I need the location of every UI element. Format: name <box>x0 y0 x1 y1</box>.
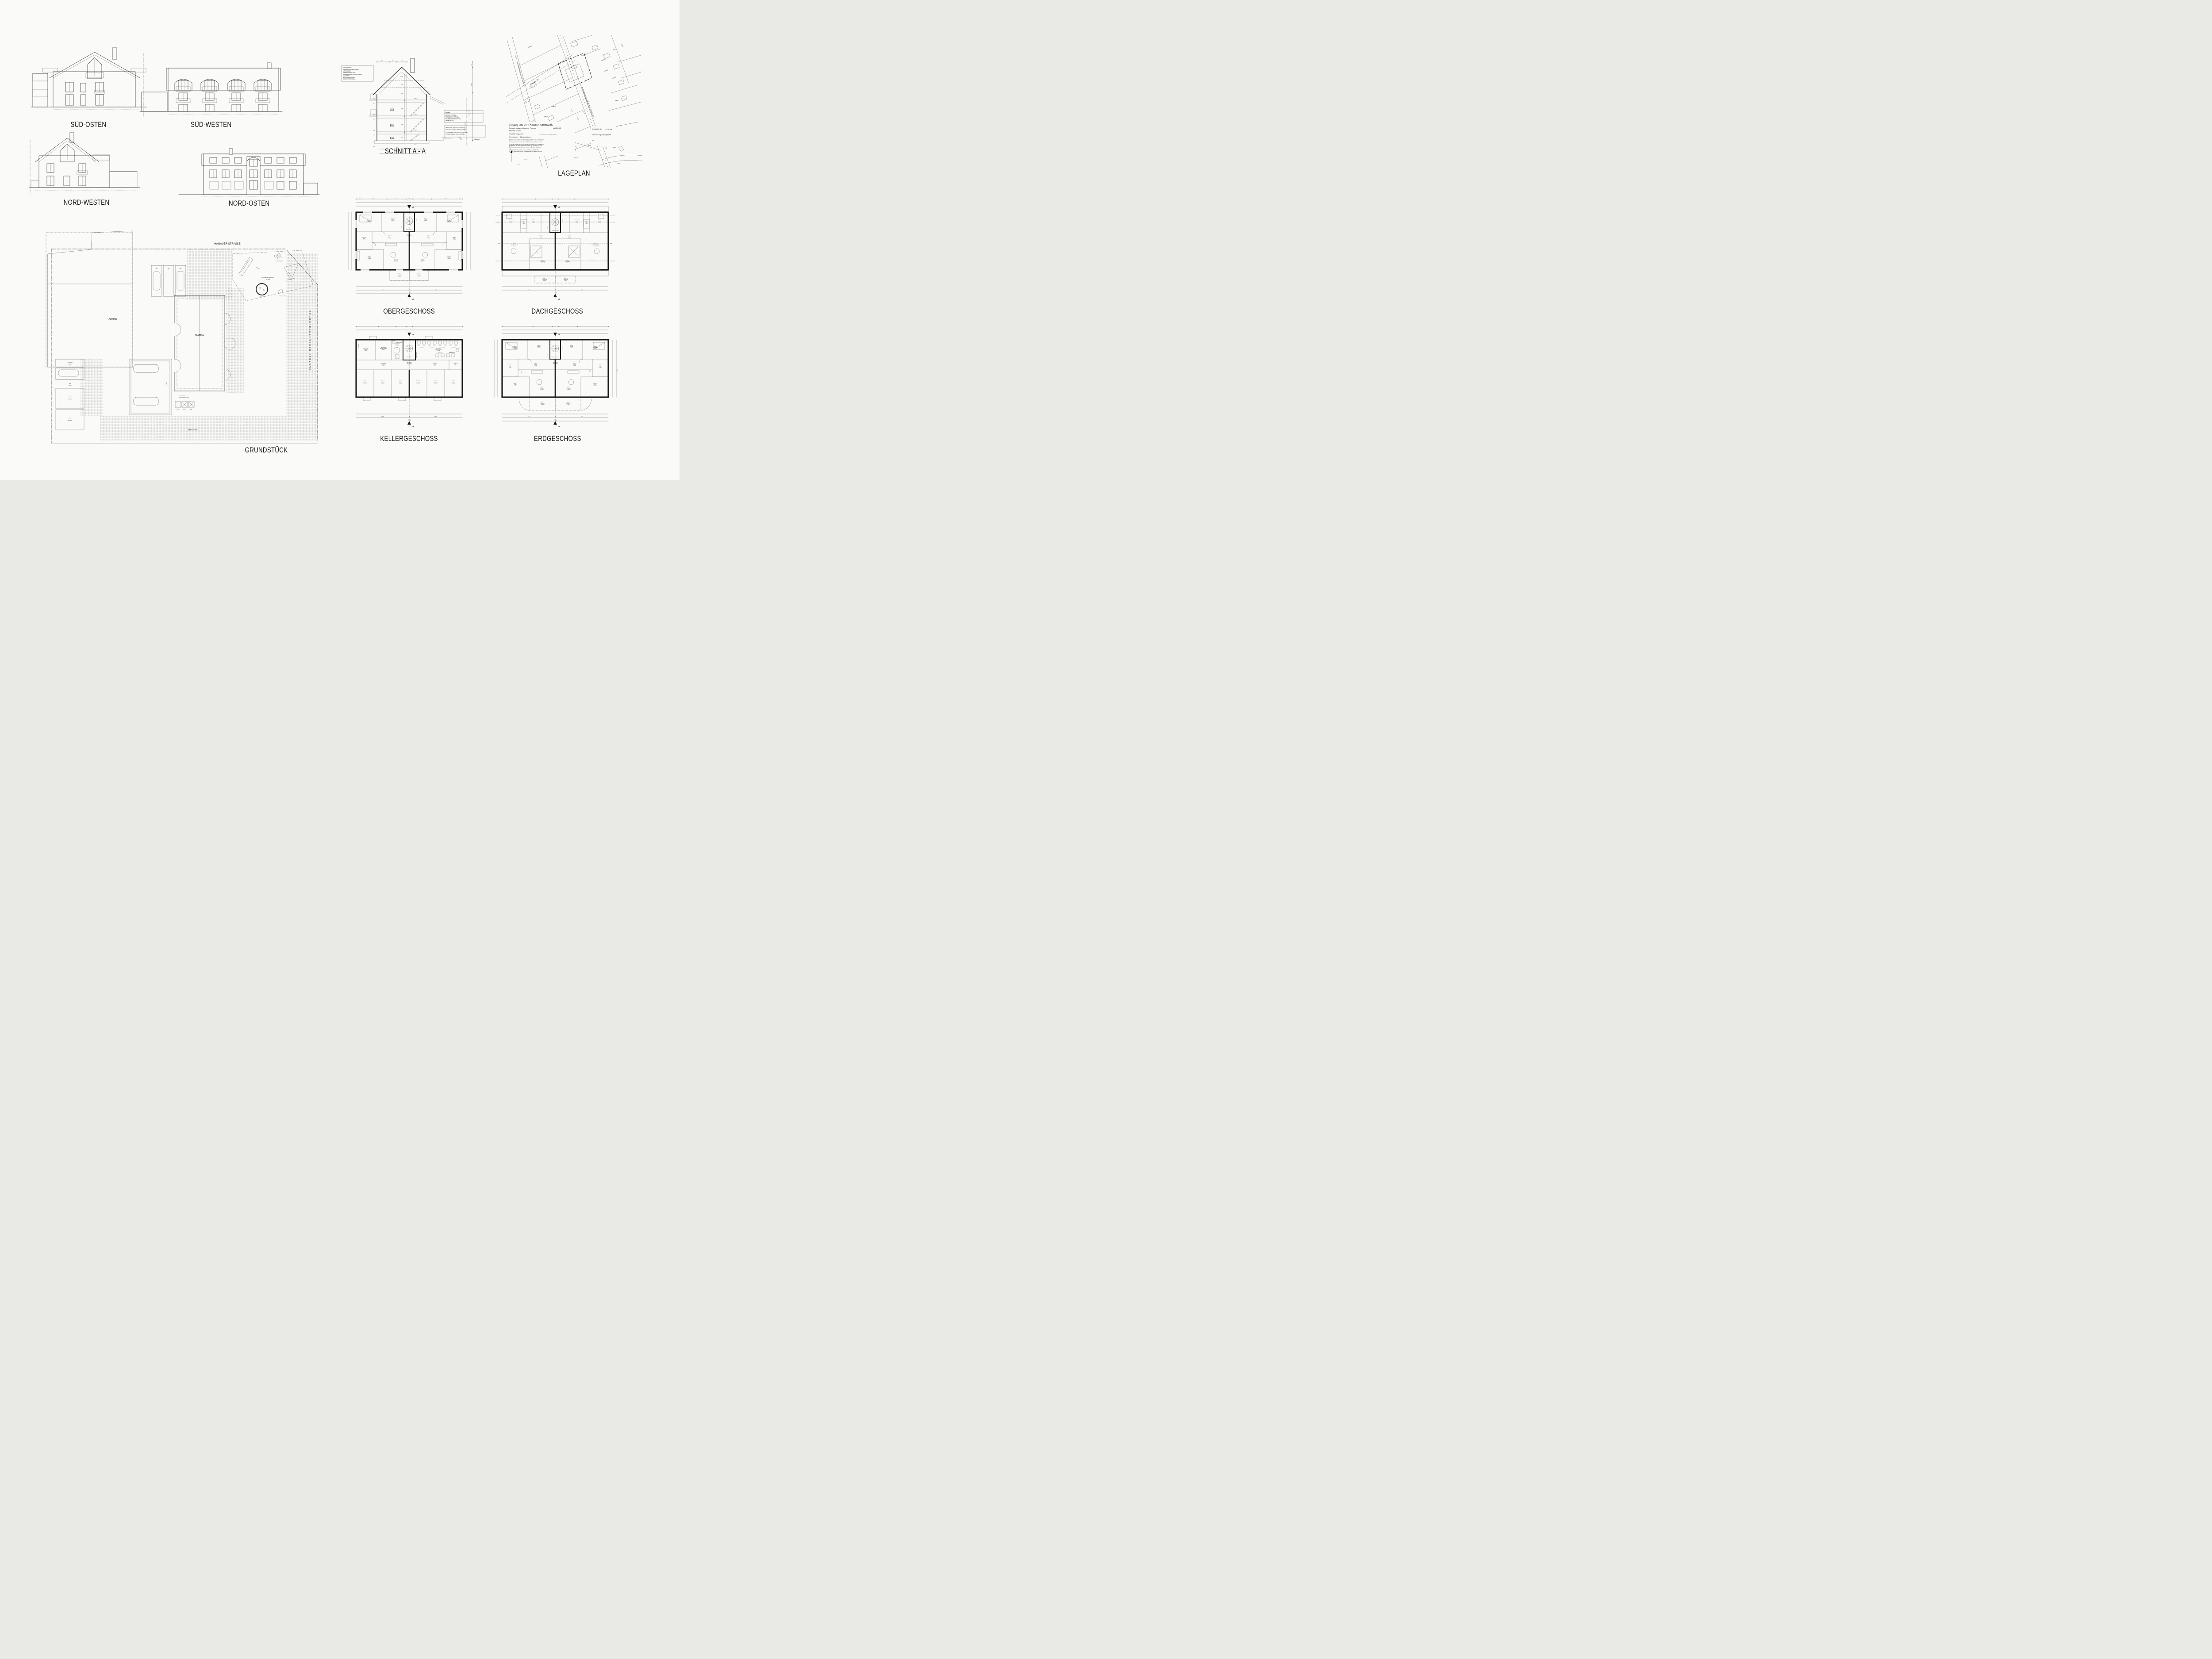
svg-text:WHG. IWOHNEN21.09m²: WHG. IWOHNEN21.09m² <box>540 387 544 390</box>
svg-text:BESTAND: BESTAND <box>68 398 72 400</box>
kataster-text-block: Auszug aus dem Katasterkartenwerk Flurka… <box>508 122 575 156</box>
svg-text:24: 24 <box>409 289 410 290</box>
svg-text:WHG. VBAD6.63m²: WHG. VBAD6.63m² <box>532 220 535 223</box>
svg-text:Ingolstadt, den: Ingolstadt, den <box>592 128 602 130</box>
elevation-nord-osten: NORD-OSTEN <box>176 136 322 211</box>
svg-text:NW 29 -6.5: NW 29 -6.5 <box>553 127 561 129</box>
svg-text:17.99: 17.99 <box>408 292 411 294</box>
svg-text:2.00 M HOCH: 2.00 M HOCH <box>495 222 501 223</box>
svg-text:ALLGEMEINHEIZUNG11.61m²: ALLGEMEINHEIZUNG11.61m² <box>395 343 400 347</box>
svg-text:-0.35: -0.35 <box>373 135 376 136</box>
floor-labels: OG EG KG <box>390 109 394 140</box>
terraces <box>535 276 576 283</box>
slab-og <box>377 100 426 102</box>
svg-text:24: 24 <box>422 198 423 199</box>
slide <box>239 257 253 276</box>
svg-text:1.00: 1.00 <box>401 84 403 85</box>
street-top-label: HAGAUER STRASSE <box>214 243 240 245</box>
house-body <box>42 48 146 107</box>
svg-text:1.73: 1.73 <box>401 61 403 61</box>
elevation-sued-westen: SÜD-WESTEN <box>138 49 284 133</box>
svg-text:WHG. IIKÜCHE11.32m²: WHG. IIKÜCHE11.32m² <box>570 345 573 349</box>
svg-text:Vermessungsamt Ingolstadt: Vermessungsamt Ingolstadt <box>592 134 611 136</box>
svg-text:WHG. IKIND14.96m²: WHG. IKIND14.96m² <box>514 383 517 387</box>
svg-text:i.A.: i.A. <box>592 140 595 142</box>
svg-text:ca. 60m²: ca. 60m² <box>266 279 270 280</box>
svg-text:1154/2: 1154/2 <box>617 162 620 164</box>
svg-text:GEHWEG: GEHWEG <box>474 138 480 140</box>
svg-text:WHG. VKÜCHE9.33m²: WHG. VKÜCHE9.33m² <box>509 220 513 223</box>
svg-text:TRAUF-HÖHE: TRAUF-HÖHE <box>469 109 470 116</box>
svg-text:8.51: 8.51 <box>581 417 583 418</box>
svg-text:15 STG. 18.5/26.5: 15 STG. 18.5/26.5 <box>552 230 559 231</box>
caption-text: LAGEPLAN <box>558 169 590 178</box>
svg-text:2 STG. 17/35: 2 STG. 17/35 <box>441 137 446 138</box>
svg-text:WHG. IVKÜCHE11.32m²: WHG. IVKÜCHE11.32m² <box>424 218 428 221</box>
svg-text:5299/52: 5299/52 <box>528 45 533 48</box>
elevation-sued-osten: SÜD-OSTEN <box>27 45 150 133</box>
boundary-lines <box>31 53 147 117</box>
svg-text:WHG. VISCHLAFEN16.95m²: WHG. VISCHLAFEN16.95m² <box>565 261 570 264</box>
svg-text:18.7/26.5 15 STG.: 18.7/26.5 15 STG. <box>406 230 413 230</box>
chimney <box>112 48 117 59</box>
elevation-sued-westen-caption: SÜD-WESTEN <box>138 120 284 129</box>
altbau-label: ALTBAU <box>108 318 117 321</box>
partitions-right <box>410 212 462 270</box>
svg-text:STPL.: STPL. <box>166 382 167 385</box>
svg-text:GA1: GA1 <box>156 268 158 269</box>
svg-text:MÜLL: MÜLL <box>183 409 186 410</box>
svg-text:8.51: 8.51 <box>382 289 384 290</box>
elevation-sued-osten-caption: SÜD-OSTEN <box>27 120 150 129</box>
svg-text:2.45: 2.45 <box>401 124 403 125</box>
plan-og-drawing: 36.5 7.0725 24 2.635 24 7.0725 36.5 8.51… <box>343 195 476 306</box>
svg-text:GA4: GA4 <box>69 383 71 384</box>
svg-text:1167: 1167 <box>518 164 520 165</box>
svg-text:1.00: 1.00 <box>401 93 403 94</box>
grundstueck-drawing: HAGAUER STRASSE SCHROBENHAUSENER STRASSE… <box>38 226 321 446</box>
partitions-left <box>502 340 554 397</box>
svg-text:In der Darstelung der Grenzen: In der Darstelung der Grenzen können Ver… <box>509 143 545 148</box>
plan-eg-drawing: 10.99 8.51 24 8.51 17.99 A A 18.7/26.5 1… <box>489 322 622 433</box>
svg-text:WHG.4: WHG.4 <box>417 218 418 221</box>
plan-eg-caption: ERDGESCHOSS <box>489 434 626 443</box>
street-main: Schrobenhausener Str. (Kr IN 14) <box>580 87 595 119</box>
plan-dg-drawing: 8.51 24 8.51 17.99 A A 1.0 <box>489 195 622 306</box>
svg-text:Die Erstellung von Auszügen au: Die Erstellung von Auszügen aus dem Kata… <box>509 139 545 143</box>
svg-text:AQUALIFT 40/40cm: AQUALIFT 40/40cm <box>449 352 456 353</box>
subject-parcel <box>558 53 592 89</box>
plan-kg-caption: KELLERGESCHOSS <box>343 434 476 443</box>
street-hagauer: Hagauer Str. <box>530 78 540 85</box>
svg-text:WHG. IKÜCHE11.32m²: WHG. IKÜCHE11.32m² <box>537 345 541 349</box>
svg-text:WHG. IIWOHNEN21.09m²: WHG. IIWOHNEN21.09m² <box>566 387 571 390</box>
elevation-nord-westen-drawing <box>27 130 146 197</box>
svg-text:WHG. IIIDIELE7.22m²: WHG. IIIDIELE7.22m² <box>388 236 392 239</box>
svg-text:WHG. ITERRASSE8.31m²: WHG. ITERRASSE8.31m² <box>540 402 545 405</box>
elevation-nord-westen: NORD-WESTEN <box>27 130 146 211</box>
svg-text:ALLGEMEINTREPPENHAUS9.30m²: ALLGEMEINTREPPENHAUS9.30m² <box>407 362 412 365</box>
windows <box>65 82 104 105</box>
svg-text:WM: WM <box>439 345 441 346</box>
ground <box>179 195 319 197</box>
svg-text:7.0725: 7.0725 <box>444 198 447 199</box>
plan-erdgeschoss: 10.99 8.51 24 8.51 17.99 A A 18.7/26.5 1… <box>489 322 626 447</box>
ground <box>140 111 282 114</box>
svg-text:WOHNUNG III: WOHNUNG III <box>430 347 435 348</box>
svg-text:16.33m²: 16.33m² <box>69 385 72 386</box>
svg-text:MÜLL: MÜLL <box>177 409 179 410</box>
svg-text:SANDKASTEN: SANDKASTEN <box>259 296 265 298</box>
svg-text:A: A <box>412 206 414 209</box>
svg-text:TROCKENBEREICH: TROCKENBEREICH <box>416 351 417 358</box>
chimney <box>70 133 74 142</box>
svg-text:WHG.2: WHG.2 <box>563 346 564 349</box>
svg-text:18.7/26.5 15 STG.: 18.7/26.5 15 STG. <box>552 357 559 358</box>
svg-text:1156/3: 1156/3 <box>574 157 578 159</box>
svg-text:MÜLL: MÜLL <box>190 409 192 410</box>
svg-text:5846/10: 5846/10 <box>601 58 606 61</box>
section-drawing: DACHAUFBAU: FLACHDACHSTEINE NATURROTLATT… <box>340 54 486 160</box>
svg-text:WHG. IBAD6.89m²: WHG. IBAD6.89m² <box>509 365 512 368</box>
chimney <box>267 63 271 69</box>
svg-text:WHG. VIBAD6.63m²: WHG. VIBAD6.63m² <box>575 220 579 223</box>
svg-text:WHG. IIIBAD6.89m²: WHG. IIIBAD6.89m² <box>362 238 366 241</box>
svg-text:SÄMTLICHE TRAGENDEN BAUTEILENA: SÄMTLICHE TRAGENDEN BAUTEILENACH STATISC… <box>445 127 467 130</box>
svg-text:WHG. IISCHLAFEN14.60m²: WHG. IISCHLAFEN14.60m² <box>593 346 598 349</box>
svg-text:WHG. IIITERRASSE4.38m²: WHG. IIITERRASSE4.38m² <box>397 274 402 277</box>
caption-text: NORD-OSTEN <box>229 199 269 208</box>
annex <box>142 92 167 111</box>
svg-text:1153: 1153 <box>613 146 616 148</box>
svg-text:A: A <box>558 425 560 428</box>
svg-text:WOHNUNG V: WOHNUNG V <box>438 352 443 353</box>
neubau-label: NEUBAU <box>195 334 204 337</box>
car <box>134 364 158 372</box>
svg-text:WHG. VIA.R.1.53m²: WHG. VIA.R.1.53m² <box>585 222 588 224</box>
svg-text:WHG. VKELLER12.71m²: WHG. VKELLER12.71m² <box>399 381 402 384</box>
svg-text:-2.62: -2.62 <box>414 145 417 146</box>
dachaufbau-lines: FLACHDACHSTEINE NATURROTLATTUNG 30/50KON… <box>343 69 362 80</box>
svg-text:WT: WT <box>445 345 446 346</box>
svg-text:1155/2: 1155/2 <box>605 147 607 150</box>
house-body <box>35 133 110 188</box>
svg-text:WHG. VA.R.1.53m²: WHG. VA.R.1.53m² <box>522 222 526 224</box>
svg-text:WT: WT <box>450 345 451 346</box>
muell-bins: MÜLL MÜLL MÜLL <box>175 402 194 410</box>
svg-text:+5.60: +5.60 <box>414 98 417 99</box>
svg-text:WHG. IIIKIND14.96m²: WHG. IIIKIND14.96m² <box>368 256 371 259</box>
caption-text: KELLERGESCHOSS <box>380 434 438 443</box>
svg-text:LÜFTUNG: LÜFTUNG <box>358 344 359 348</box>
svg-text:1167/16: 1167/16 <box>570 109 572 113</box>
svg-text:WHG. IIBAD6.89m²: WHG. IIBAD6.89m² <box>599 365 602 368</box>
boden-lines: ESTRICH ZE 30.5cmSTB-BODENPLATTE 25cmSAU… <box>445 115 461 122</box>
svg-text:A: A <box>412 333 414 336</box>
svg-text:1167/5: 1167/5 <box>615 100 618 101</box>
elevation-nord-osten-caption: NORD-OSTEN <box>176 199 322 208</box>
svg-text:24: 24 <box>555 417 556 418</box>
svg-text:+2.45: +2.45 <box>373 119 375 120</box>
svg-text:36.5: 36.5 <box>459 198 461 199</box>
level-marks: +5.45 +5.25 +2.65 +2.45 -0.15 -0.35 -2.7… <box>373 98 426 153</box>
svg-text:1.5342: 1.5342 <box>400 77 403 77</box>
svg-text:A: A <box>412 425 414 428</box>
partitions-right <box>556 340 608 397</box>
svg-text:8.76m²: 8.76m² <box>69 364 71 365</box>
fence-left <box>31 180 39 188</box>
paving <box>81 249 318 441</box>
svg-text:5846/20: 5846/20 <box>604 69 609 72</box>
svg-text:WHG. VIDIELE5.31m²: WHG. VIDIELE5.31m² <box>568 236 571 239</box>
svg-text:WHG.1: WHG.1 <box>548 353 549 356</box>
svg-text:WOHNUNG IV: WOHNUNG IV <box>441 347 445 348</box>
floor-kg: KG <box>390 137 394 140</box>
svg-text:-0.15: -0.15 <box>373 130 376 131</box>
svg-text:WHG.6: WHG.6 <box>563 219 564 222</box>
caption-text: NORD-WESTEN <box>63 198 109 207</box>
balconies-left <box>370 94 377 117</box>
svg-text:GA6: GA6 <box>69 418 71 419</box>
boden-note: BODEN: ESTRICH ZE 30.5cmSTB-BODENPLATTE … <box>444 111 483 123</box>
wippschnecke: WIPPSCHNECKE <box>278 289 286 297</box>
svg-text:WHG. VDIELE5.31m²: WHG. VDIELE5.31m² <box>539 236 543 239</box>
svg-text:WIPP KLEEBLATT: WIPP KLEEBLATT <box>276 261 284 262</box>
svg-text:WHG. IVDIELE7.22m²: WHG. IVDIELE7.22m² <box>427 236 431 239</box>
svg-text:GA2: GA2 <box>168 268 170 269</box>
svg-text:24: 24 <box>555 289 556 290</box>
stair-tower <box>247 157 260 195</box>
chimney <box>411 58 415 73</box>
chimney <box>229 149 233 154</box>
svg-text:WHG. IVTERRASSE4.38m²: WHG. IVTERRASSE4.38m² <box>417 274 422 277</box>
svg-text:WHG. IIKELLER12.71m²: WHG. IIKELLER12.71m² <box>452 381 455 384</box>
wipp-kleeblatt: WIPP KLEEBLATT <box>274 253 283 262</box>
svg-text:Unsernherrn: Unsernherrn <box>520 136 532 138</box>
svg-text:Maßstab 1:1000: Maßstab 1:1000 <box>509 130 521 132</box>
svg-text:WM: WM <box>429 345 430 346</box>
lageplan-map: Hagauer Str. Schrobenhausener Str. (Kr I… <box>505 35 642 168</box>
svg-text:50: 50 <box>471 64 472 65</box>
sidewalk-step <box>430 139 452 141</box>
grundstueck-caption: GRUNDSTÜCK <box>213 446 319 455</box>
svg-text:WHG.3: WHG.3 <box>402 226 403 228</box>
dachaufbau-title: DACHAUFBAU: <box>343 66 352 68</box>
svg-text:3.1725: 3.1725 <box>471 83 472 86</box>
caption-text: OBERGESCHOSS <box>384 307 435 316</box>
svg-text:2.00 M HOCH: 2.00 M HOCH <box>610 261 615 262</box>
svg-text:WHG.5: WHG.5 <box>548 226 549 229</box>
svg-text:10.2.98: 10.2.98 <box>605 128 612 130</box>
caption-text: SÜD-OSTEN <box>71 120 107 129</box>
elevation-sued-westen-drawing <box>138 49 284 119</box>
svg-text:2.635: 2.635 <box>408 198 411 199</box>
caption-text: SCHNITT A - A <box>385 147 426 156</box>
terraces <box>390 270 429 280</box>
slab-eg <box>377 116 426 118</box>
stairs <box>410 103 424 141</box>
elevation-nord-osten-drawing <box>176 136 322 198</box>
svg-text:WHG. IITERRASSE8.31m²: WHG. IITERRASSE8.31m² <box>566 402 571 405</box>
svg-text:WHG. IVBAD6.89m²: WHG. IVBAD6.89m² <box>453 238 457 241</box>
plan-obergeschoss: 36.5 7.0725 24 2.635 24 7.0725 36.5 8.51… <box>343 195 476 320</box>
svg-text:1167/30: 1167/30 <box>524 160 528 161</box>
svg-text:WHG. IDIELE7.22m²: WHG. IDIELE7.22m² <box>534 363 538 366</box>
svg-text:WHG. IVSCHLAFEN14.60m²: WHG. IVSCHLAFEN14.60m² <box>447 219 452 222</box>
annex-right <box>303 183 318 195</box>
svg-text:FIRST: FIRST <box>610 243 613 244</box>
svg-text:WHG. VITERRASSE3.32m²: WHG. VITERRASSE3.32m² <box>564 278 568 281</box>
top-dims: 97.5 93 1.73 <box>376 61 407 62</box>
svg-text:GA3: GA3 <box>180 268 182 269</box>
svg-text:WHG. IIDIELE7.22m²: WHG. IIDIELE7.22m² <box>573 363 576 366</box>
svg-text:(zur Maßentnahme nur bedingt g: (zur Maßentnahme nur bedingt geeignet) <box>539 134 557 135</box>
svg-text:14 STG. 18.5/26.5: 14 STG. 18.5/26.5 <box>406 357 412 358</box>
svg-text:1167/20: 1167/20 <box>576 118 579 121</box>
lageplan-caption: LAGEPLAN <box>505 169 642 178</box>
svg-text:17.99: 17.99 <box>554 420 557 421</box>
caption-text: ERDGESCHOSS <box>534 434 581 443</box>
svg-text:WHG. VIKELLER12.71m²: WHG. VIKELLER12.71m² <box>416 381 420 384</box>
svg-text:WM: WM <box>455 345 457 346</box>
plan-dachgeschoss: 8.51 24 8.51 17.99 A A 1.0 <box>489 195 626 320</box>
svg-text:ALLGEMEINTREPPENHAUS6.78m²: ALLGEMEINTREPPENHAUS6.78m² <box>553 362 558 365</box>
flurnummer-note: FLURNUMMER:TEILFLÄCHE AUS 1167/4 <box>179 396 189 398</box>
svg-text:17.99: 17.99 <box>554 292 557 294</box>
boden-title: BODEN: <box>445 111 450 113</box>
svg-text:WHG. IIIKELLER12.71m²: WHG. IIIKELLER12.71m² <box>381 381 384 384</box>
playground-title: KINDERSPIELPLATZ <box>262 276 275 278</box>
svg-text:A: A <box>558 206 560 209</box>
svg-text:WHG. IVKIND14.96m²: WHG. IVKIND14.96m² <box>447 256 451 259</box>
svg-text:5846/26: 5846/26 <box>621 44 623 48</box>
svg-text:WOHNUNG I: WOHNUNG I <box>419 347 424 348</box>
svg-text:2.00 M HOCH: 2.00 M HOCH <box>495 261 501 262</box>
svg-text:17.99: 17.99 <box>408 420 411 421</box>
floor-eg: EG <box>390 125 394 127</box>
svg-text:97.5: 97.5 <box>381 61 384 61</box>
drawing-sheet: SÜD-OSTEN SÜD-WESTE <box>0 0 680 480</box>
plan-kg-drawing: 8.575 24 8.575 17.99 A A 14 STG. 18.5/26… <box>343 322 476 433</box>
svg-text:Gemarkung: Gemarkung <box>509 136 518 138</box>
svg-text:10.99: 10.99 <box>618 369 618 372</box>
svg-text:BESTAND: BESTAND <box>68 420 72 421</box>
svg-text:WIPPSCHNECKE: WIPPSCHNECKE <box>279 296 286 297</box>
svg-text:2.25: 2.25 <box>401 138 403 138</box>
windows <box>47 164 88 186</box>
plan-dg-caption: DACHGESCHOSS <box>489 307 626 316</box>
svg-text:7.0725: 7.0725 <box>372 198 375 199</box>
kataster-title: Auszug aus dem Katasterkartenwerk <box>509 124 553 126</box>
svg-text:WHG. VIKÜCHE9.33m²: WHG. VIKÜCHE9.33m² <box>598 220 601 223</box>
svg-text:AQUALIFT 40/40cm: AQUALIFT 40/40cm <box>396 342 403 343</box>
altbau: ALTBAU <box>46 231 133 367</box>
grundstueck-site-plan: HAGAUER STRASSE SCHROBENHAUSENER STRASSE… <box>38 226 321 460</box>
dachaufbau-note: DACHAUFBAU: FLACHDACHSTEINE NATURROTLATT… <box>342 65 373 81</box>
svg-text:WHG. IVWOHNEN21.00m²: WHG. IVWOHNEN21.00m² <box>420 260 425 263</box>
svg-text:WHG. IIIWOHNEN21.00m²: WHG. IIIWOHNEN21.00m² <box>394 260 398 263</box>
car <box>58 370 79 376</box>
plan-kellergeschoss: 8.575 24 8.575 17.99 A A 14 STG. 18.5/26… <box>343 322 476 447</box>
svg-text:+5.45: +5.45 <box>373 99 375 100</box>
svg-text:WOHNUNG II: WOHNUNG II <box>451 347 456 348</box>
parking-mid: STPL. <box>129 359 172 415</box>
sandbox: SANDKASTEN <box>256 284 268 298</box>
einfahrt-label: EINFAHRT <box>188 429 198 431</box>
svg-text:VERMIETERKELLER9.14m²: VERMIETERKELLER9.14m² <box>363 348 369 351</box>
svg-text:ALLGEMEINFLUR II9.04m²: ALLGEMEINFLUR II9.04m² <box>433 363 438 366</box>
plan-og-caption: OBERGESCHOSS <box>343 307 476 316</box>
section-line: A A <box>553 205 560 301</box>
svg-text:5299/53: 5299/53 <box>515 56 517 60</box>
svg-text:Vergrößerung aus 1:: Vergrößerung aus 1: <box>509 133 524 135</box>
room-labels: VERMIETERKELLER9.14m² ALLGEMEINANSCHLUSS… <box>363 343 458 384</box>
svg-text:WHG. IIKIND14.96m²: WHG. IIKIND14.96m² <box>593 383 597 387</box>
svg-text:1.00 M HOCH: 1.00 M HOCH <box>610 216 615 217</box>
svg-text:Flurkarte /Ausschnitt aus der: Flurkarte /Ausschnitt aus der Flurkarte <box>509 127 536 129</box>
svg-text:1167/12: 1167/12 <box>552 106 557 107</box>
svg-text:2.45: 2.45 <box>401 108 403 109</box>
washing-machines: WM WT WM WT WM WT WT WM WOHNUNG I WOHNUN… <box>358 341 459 359</box>
caption-text: DACHGESCHOSS <box>532 307 583 316</box>
street-main-left: Schrobenhausener Str. (Kr IN 14) <box>516 61 526 88</box>
balcony-column <box>33 73 48 107</box>
svg-text:+2.80: +2.80 <box>414 114 417 115</box>
ground <box>29 140 140 195</box>
svg-text:FUNDAMENTE AUF TRAGFÄHIGEN UND: FUNDAMENTE AUF TRAGFÄHIGEN UNDFROSTSICHE… <box>445 132 468 135</box>
slab-kg <box>377 132 426 134</box>
svg-text:WHG. IIIKÜCHE11.32m²: WHG. IIIKÜCHE11.32m² <box>391 218 395 221</box>
svg-text:5846/3: 5846/3 <box>613 48 617 51</box>
svg-text:8.51: 8.51 <box>581 289 583 290</box>
svg-text:93: 93 <box>392 61 394 61</box>
svg-text:WHG. VWOHNEN/ESSEN22.08m²: WHG. VWOHNEN/ESSEN22.08m² <box>511 244 518 247</box>
svg-text:WM: WM <box>418 345 420 346</box>
gable-dormer <box>60 144 74 162</box>
dormers-and-windows <box>174 79 272 111</box>
svg-text:8.51: 8.51 <box>435 289 437 290</box>
svg-text:WHG. VTERRASSE3.32m²: WHG. VTERRASSE3.32m² <box>542 278 547 281</box>
section-building <box>370 58 452 143</box>
floor-og: OG <box>390 109 394 111</box>
fence-garage-right <box>110 172 137 188</box>
svg-text:WT: WT <box>423 345 425 346</box>
caption-text: GRUNDSTÜCK <box>245 446 288 455</box>
garages-top: GA1 GA2 GA3 <box>151 265 186 296</box>
svg-text:6.27: 6.27 <box>471 119 472 121</box>
storey-dims: 2.45 2.45 2.25 1.00 1.00 1.5342 <box>400 74 405 141</box>
lageplan: Hagauer Str. Schrobenhausener Str. (Kr I… <box>505 35 642 182</box>
svg-text:WT: WT <box>434 345 435 346</box>
svg-text:A: A <box>558 333 560 336</box>
svg-text:ALLGEMEINANSCHLUSSRAUM8.64m²: ALLGEMEINANSCHLUSSRAUM8.64m² <box>380 347 388 350</box>
svg-text:8.575: 8.575 <box>434 417 437 418</box>
svg-text:8.51: 8.51 <box>528 417 530 418</box>
svg-text:1249: 1249 <box>576 77 578 80</box>
svg-text:8.575: 8.575 <box>381 417 384 418</box>
svg-text:2.00 M HOCH: 2.00 M HOCH <box>610 222 615 223</box>
svg-text:GA5: GA5 <box>69 396 71 398</box>
elevation-sued-osten-drawing <box>27 45 150 119</box>
svg-text:±0.00: ±0.00 <box>414 130 417 131</box>
base-slab <box>374 141 429 143</box>
svg-text:WHG. VIWOHNEN/ESSEN22.08m²: WHG. VIWOHNEN/ESSEN22.08m² <box>592 244 600 247</box>
svg-text:+0.33: +0.33 <box>458 137 461 138</box>
svg-text:A: A <box>412 298 414 301</box>
svg-text:1.00 M HOCH: 1.00 M HOCH <box>495 216 501 217</box>
terraces <box>519 397 591 410</box>
caption-text: SÜD-WESTEN <box>191 120 231 129</box>
